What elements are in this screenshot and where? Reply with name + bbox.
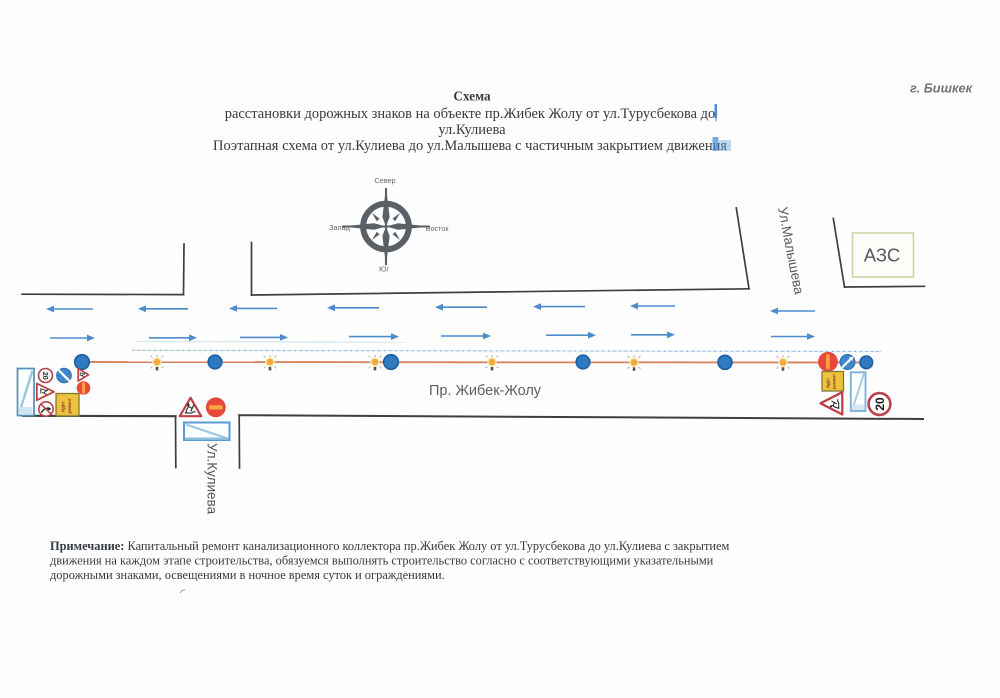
svg-text:Примечание: Капитальный ремонт: Примечание: Капитальный ремонт канализац… (50, 539, 729, 553)
svg-text:расстановки дорожных знаков на: расстановки дорожных знаков на объекте п… (225, 106, 716, 122)
svg-text:дорожными знаками, освещениями: дорожными знаками, освещениями в ночное … (50, 568, 445, 582)
svg-text:20: 20 (873, 397, 887, 411)
svg-text:Ул.Кулиева: Ул.Кулиева (205, 443, 220, 515)
svg-text:Север: Север (374, 176, 395, 185)
svg-text:ремонт: ремонт (832, 374, 837, 389)
svg-text:Идёт: Идёт (61, 402, 66, 412)
svg-text:движения на каждом этапе строи: движения на каждом этапе строительства, … (50, 554, 714, 568)
svg-text:ремонт: ремонт (67, 398, 72, 413)
svg-text:20: 20 (41, 372, 48, 380)
svg-text:АЗС: АЗС (864, 245, 900, 266)
svg-text:Идёт: Идёт (826, 378, 831, 388)
svg-text:ул.Кулиева: ул.Кулиева (438, 122, 506, 138)
svg-text:г. Бишкек: г. Бишкек (910, 81, 973, 96)
svg-text:Запад: Запад (329, 223, 350, 232)
svg-text:Поэтапная схема от ул.Кулиева: Поэтапная схема от ул.Кулиева до ул.Малы… (213, 138, 727, 154)
svg-text:Схема: Схема (453, 89, 491, 104)
svg-text:Пр. Жибек-Жолу: Пр. Жибек-Жолу (429, 383, 542, 399)
svg-text:Восток: Восток (425, 224, 449, 233)
svg-text:Юг: Юг (379, 265, 389, 274)
